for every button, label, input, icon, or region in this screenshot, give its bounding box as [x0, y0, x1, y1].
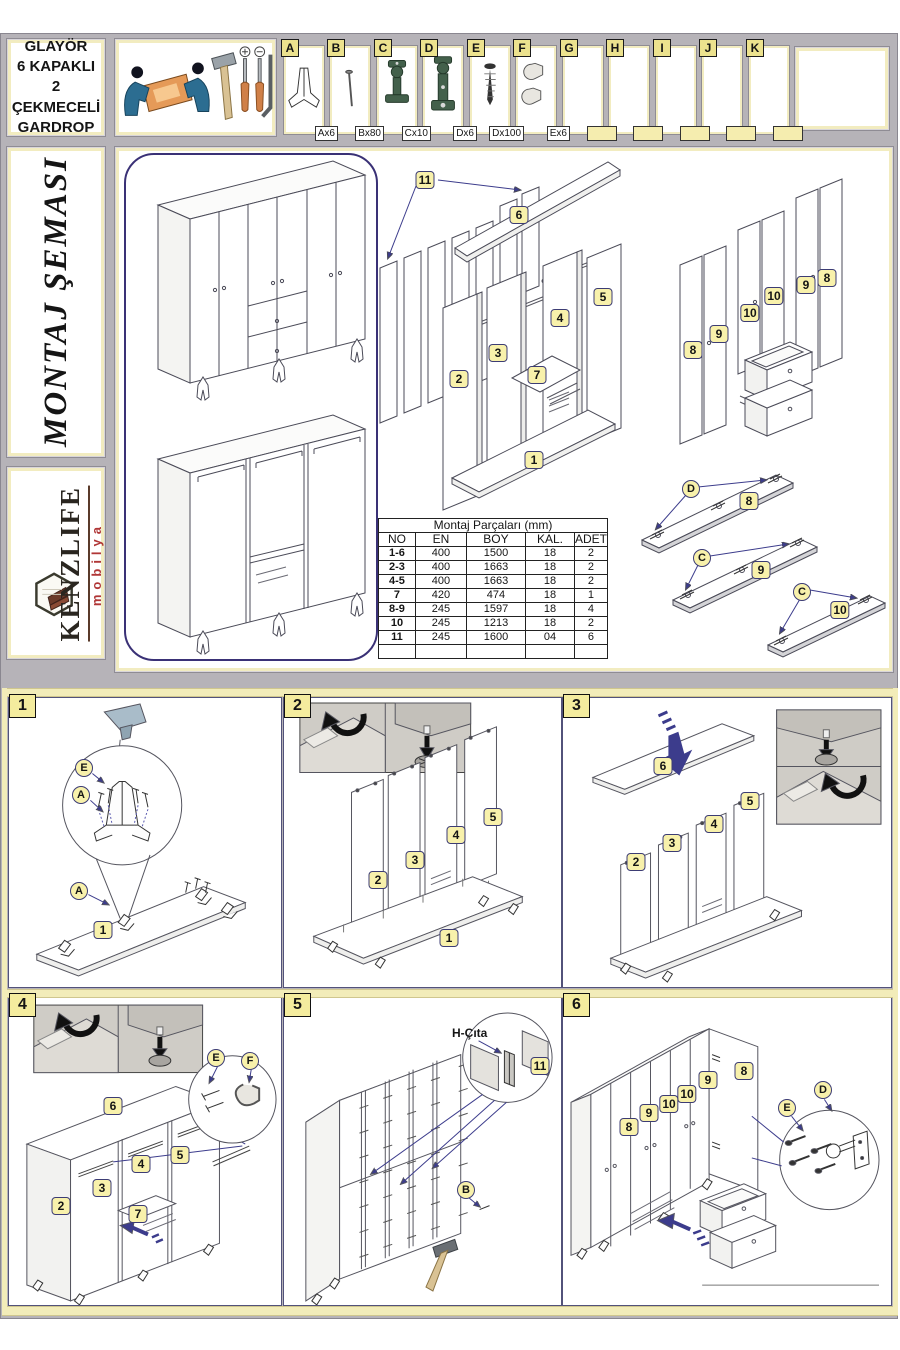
- hardware-cell-d: D Dx6: [422, 45, 464, 135]
- parts-table-title: Montaj Parçaları (mm): [379, 519, 608, 533]
- step5-illustration: [284, 997, 561, 1305]
- hardware-letter: J: [699, 39, 717, 57]
- hinge-large-icon: [423, 46, 463, 134]
- divider: [2, 989, 898, 998]
- divider: [2, 1306, 898, 1316]
- part-badge: 8: [620, 1118, 639, 1136]
- hardware-cell-k: K: [748, 45, 790, 135]
- part-badge: 1: [525, 451, 544, 469]
- part-badge: 3: [663, 834, 682, 852]
- hardware-letter: H: [606, 39, 624, 57]
- brand-sub-wrap: mobilya: [85, 475, 103, 653]
- part-badge: 9: [640, 1104, 659, 1122]
- step-number: 2: [284, 694, 311, 718]
- part-badge: 6: [104, 1097, 123, 1115]
- col-header: EN: [415, 533, 466, 547]
- part-badge: 5: [741, 792, 760, 810]
- hardware-callout: B: [457, 1181, 475, 1199]
- step-2-panel: [283, 697, 562, 988]
- panel-8: [642, 474, 793, 553]
- assembly-sheet: GLAYÖR 6 KAPAKLI 2 ÇEKMECELİ GARDROP A: [0, 0, 900, 1350]
- part-badge: 9: [752, 561, 771, 579]
- part-badge: 3: [93, 1179, 112, 1197]
- hardware-cell-f: F Ex6: [515, 45, 557, 135]
- part-badge: 3: [489, 344, 508, 362]
- hardware-callout: E: [778, 1099, 796, 1117]
- step-number: 6: [563, 993, 590, 1017]
- part-badge: 8: [818, 269, 837, 287]
- h-cita-label: H-Çıta: [452, 1026, 487, 1040]
- hardware-callout: C: [793, 583, 811, 601]
- part-badge: 8: [684, 341, 703, 359]
- part-badge: 3: [406, 851, 425, 869]
- hardware-letter: A: [281, 39, 299, 57]
- hardware-callout: D: [682, 480, 700, 498]
- table-row: 7420 474181: [379, 589, 608, 603]
- hardware-cell-g: G: [562, 45, 604, 135]
- hardware-cell-a: A Ax6: [283, 45, 325, 135]
- hardware-qty-empty: [680, 126, 710, 141]
- hardware-letter: K: [746, 39, 764, 57]
- exploded-diagram: [372, 148, 642, 513]
- table-row: 10245 1213182: [379, 617, 608, 631]
- part-badge: 2: [450, 370, 469, 388]
- part-badge: 7: [528, 366, 547, 384]
- hinge-panels-diagram: [628, 455, 893, 660]
- hardware-qty: Ax6: [315, 126, 338, 141]
- table-row: 2-3400 1663182: [379, 561, 608, 575]
- hinge-icon: [377, 46, 417, 134]
- part-badge: 4: [132, 1155, 151, 1173]
- parts-table: Montaj Parçaları (mm) NO EN BOY KAL. ADE…: [378, 518, 608, 659]
- product-title: GLAYÖR 6 KAPAKLI 2 ÇEKMECELİ GARDROP: [6, 38, 106, 137]
- part-badge: 9: [710, 325, 729, 343]
- part-badge: 2: [52, 1197, 71, 1215]
- part-badge: 8: [740, 492, 759, 510]
- hardware-qty: Cx10: [402, 126, 431, 141]
- step-number: 5: [284, 993, 311, 1017]
- part-badge: 1: [94, 921, 113, 939]
- divider: [893, 688, 898, 1314]
- brand-box: KENZLIFE mobilya: [6, 466, 106, 660]
- overview-box: [124, 153, 378, 661]
- step-6-panel: [562, 996, 892, 1306]
- table-row: 8-9245 1597184: [379, 603, 608, 617]
- step6-illustration: [563, 997, 891, 1305]
- divider: [2, 688, 898, 697]
- step-3-panel: [562, 697, 892, 988]
- title-line: 2 ÇEKMECELİ: [7, 77, 105, 118]
- step-number: 4: [9, 993, 36, 1017]
- hardware-callout: C: [693, 549, 711, 567]
- hardware-qty: Bx80: [355, 126, 384, 141]
- hardware-letter: I: [653, 39, 671, 57]
- part-badge: 5: [171, 1146, 190, 1164]
- part-badge: 5: [484, 808, 503, 826]
- part-badge: 2: [627, 853, 646, 871]
- part-badge: 9: [797, 276, 816, 294]
- hardware-qty-empty: [773, 126, 803, 141]
- step-1-panel: [8, 697, 282, 988]
- part-badge: 10: [764, 287, 783, 305]
- brand-name-wrap: KENZLIFE: [55, 475, 89, 653]
- workers-tools-illustration: [114, 38, 277, 137]
- step1-illustration: [9, 698, 281, 987]
- col-header: BOY: [466, 533, 525, 547]
- hardware-letter: C: [374, 39, 392, 57]
- exploded-diagram-art: [372, 148, 642, 513]
- hardware-letter: G: [560, 39, 578, 57]
- title-line: 6 KAPAKLI: [17, 57, 95, 77]
- hardware-cell-h: H: [608, 45, 650, 135]
- leg-bracket-icon: [284, 46, 324, 134]
- table-row: 1-6400 1500182: [379, 547, 608, 561]
- wardrobe-overview: [126, 155, 376, 659]
- hardware-cell-c: C Cx10: [376, 45, 418, 135]
- nail-icon: [330, 46, 370, 134]
- step-5-panel: [283, 996, 562, 1306]
- hardware-callout: A: [72, 786, 90, 804]
- hardware-cell-i: I: [655, 45, 697, 135]
- step-4-panel: [8, 996, 282, 1306]
- screw-icon: [470, 46, 510, 134]
- hardware-cell-e: E Dx100: [469, 45, 511, 135]
- part-badge: 10: [659, 1095, 678, 1113]
- part-badge: 2: [369, 871, 388, 889]
- hardware-letter: B: [327, 39, 345, 57]
- hardware-letter: D: [420, 39, 438, 57]
- part-badge: 5: [594, 288, 613, 306]
- part-badge: 9: [699, 1071, 718, 1089]
- part-badge: 11: [416, 171, 435, 189]
- hardware-letter: F: [513, 39, 531, 57]
- part-badge: 11: [531, 1057, 550, 1075]
- step3-illustration: [563, 698, 891, 987]
- title-line: GARDROP: [18, 118, 95, 138]
- col-header: NO: [379, 533, 416, 547]
- hardware-callout: E: [75, 759, 93, 777]
- part-badge: 4: [551, 309, 570, 327]
- part-badge: 6: [510, 206, 529, 224]
- panel-9: [673, 538, 817, 613]
- sheet-title: MONTAJ ŞEMASI: [38, 156, 75, 447]
- hardware-qty: Ex6: [547, 126, 570, 141]
- step2-illustration: [284, 698, 561, 987]
- tools-icon: [115, 39, 276, 136]
- step-number: 3: [563, 694, 590, 718]
- hardware-cell-blank: [794, 46, 890, 131]
- part-badge: 1: [440, 929, 459, 947]
- hardware-callout: E: [207, 1049, 225, 1067]
- part-badge: 10: [677, 1085, 696, 1103]
- hardware-cell-b: B Bx80: [329, 45, 371, 135]
- sidebar-title-box: MONTAJ ŞEMASI: [6, 146, 106, 458]
- hardware-qty-empty: [726, 126, 756, 141]
- step-number: 1: [9, 694, 36, 718]
- hardware-qty: Dx100: [489, 126, 524, 141]
- part-badge: 10: [830, 601, 849, 619]
- col-header: ADET: [574, 533, 607, 547]
- hardware-cell-j: J: [701, 45, 743, 135]
- part-badge: 6: [654, 757, 673, 775]
- hardware-qty-empty: [633, 126, 663, 141]
- hardware-qty: Dx6: [453, 126, 477, 141]
- table-row: [379, 645, 608, 659]
- part-badge: 4: [705, 815, 724, 833]
- drill-icon: [104, 704, 146, 730]
- part-badge: 7: [129, 1205, 148, 1223]
- hook-icon: [516, 46, 556, 134]
- table-row: 4-5400 1663182: [379, 575, 608, 589]
- hardware-qty-empty: [587, 126, 617, 141]
- part-badge: 4: [447, 826, 466, 844]
- magnifier-circle: [189, 1056, 276, 1143]
- divider: [2, 688, 7, 1314]
- table-row: 11245 1600046: [379, 631, 608, 645]
- col-header: KAL.: [525, 533, 574, 547]
- part-badge: 8: [735, 1062, 754, 1080]
- hardware-letter: E: [467, 39, 485, 57]
- hardware-callout: D: [814, 1081, 832, 1099]
- hardware-callout: A: [70, 882, 88, 900]
- step4-illustration: [9, 997, 281, 1305]
- brand-subtitle: mobilya: [89, 522, 104, 606]
- panel-10: [768, 595, 885, 657]
- part-badge: 10: [740, 304, 759, 322]
- title-line: GLAYÖR: [25, 37, 88, 57]
- hinge-panels-art: [628, 455, 893, 660]
- hardware-callout: F: [241, 1052, 259, 1070]
